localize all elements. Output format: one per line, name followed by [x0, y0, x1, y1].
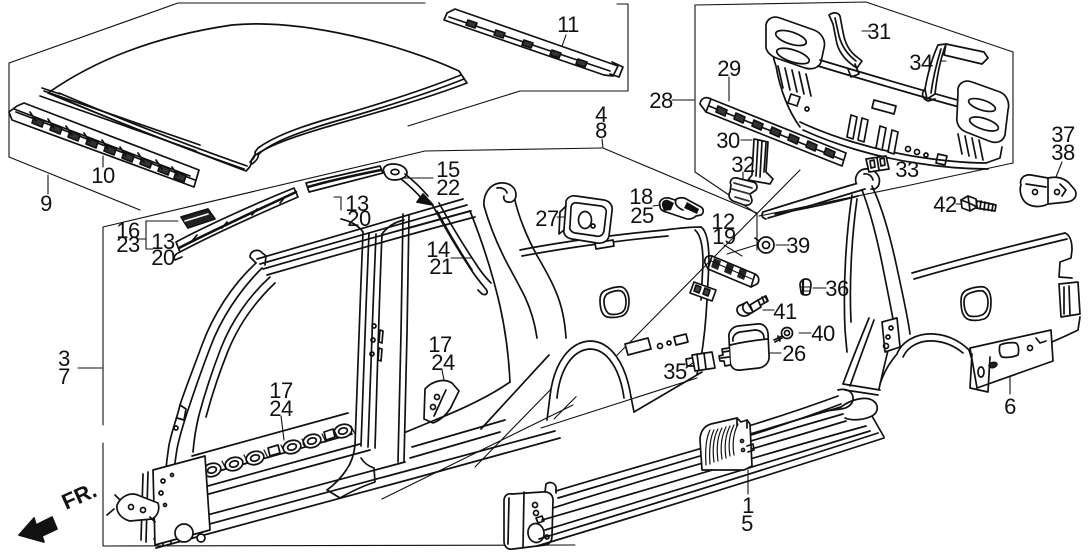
svg-text:34: 34 — [909, 50, 933, 75]
svg-text:26: 26 — [782, 341, 806, 366]
svg-text:41: 41 — [773, 299, 797, 324]
svg-text:8: 8 — [595, 118, 607, 143]
svg-text:24: 24 — [431, 350, 455, 375]
svg-text:20: 20 — [347, 206, 371, 231]
svg-text:38: 38 — [1051, 140, 1075, 165]
svg-text:32: 32 — [731, 152, 755, 177]
svg-text:21: 21 — [429, 254, 453, 279]
svg-text:6: 6 — [1004, 394, 1016, 419]
svg-text:5: 5 — [741, 511, 753, 536]
svg-text:39: 39 — [786, 233, 810, 258]
svg-text:11: 11 — [557, 12, 579, 37]
svg-text:22: 22 — [436, 175, 460, 200]
svg-text:29: 29 — [717, 56, 741, 81]
svg-text:FR.: FR. — [58, 477, 101, 514]
svg-text:35: 35 — [663, 359, 687, 384]
svg-text:20: 20 — [151, 245, 175, 270]
svg-text:10: 10 — [91, 163, 115, 188]
svg-text:24: 24 — [269, 396, 293, 421]
svg-text:7: 7 — [58, 364, 70, 389]
svg-text:33: 33 — [895, 157, 919, 182]
svg-text:31: 31 — [867, 19, 891, 44]
svg-text:28: 28 — [649, 88, 673, 113]
svg-text:23: 23 — [116, 232, 140, 257]
svg-text:27: 27 — [535, 206, 559, 231]
svg-text:25: 25 — [630, 203, 654, 228]
svg-text:42: 42 — [933, 192, 957, 217]
svg-text:36: 36 — [825, 276, 849, 301]
svg-text:9: 9 — [40, 191, 52, 216]
svg-text:40: 40 — [811, 321, 835, 346]
svg-text:30: 30 — [716, 128, 740, 153]
svg-text:19: 19 — [712, 224, 736, 249]
